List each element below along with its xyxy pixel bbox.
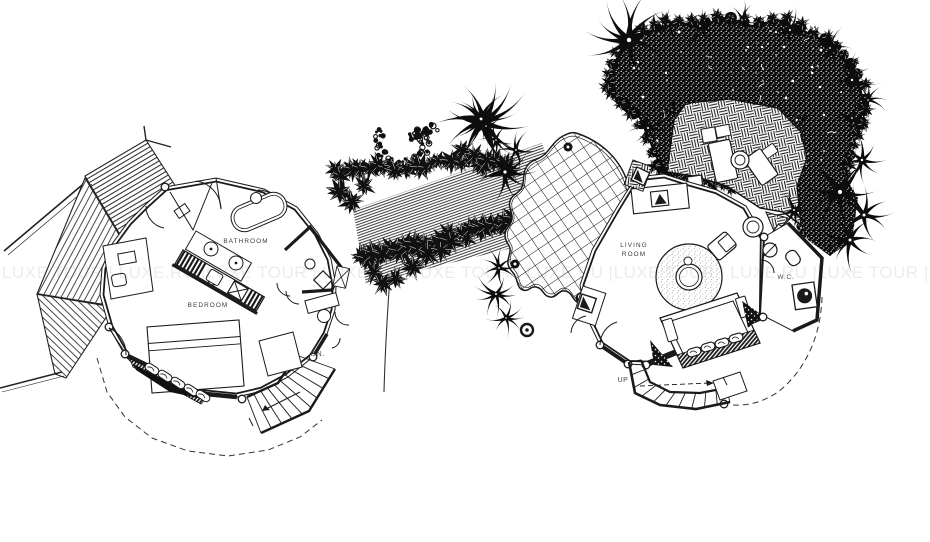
svg-text:UP: UP: [618, 377, 629, 384]
svg-text:BATHROOM: BATHROOM: [223, 238, 268, 245]
svg-text:DN.: DN.: [311, 351, 325, 358]
svg-text:LUXE TOUR | LUXE.RU |LUXE TOUR: LUXE TOUR | LUXE.RU |LUXE TOUR | LUXE.RU…: [2, 263, 930, 282]
svg-text:BEDROOM: BEDROOM: [188, 302, 229, 309]
svg-text:ROOM: ROOM: [622, 251, 646, 258]
svg-text:LIVING: LIVING: [620, 242, 648, 249]
